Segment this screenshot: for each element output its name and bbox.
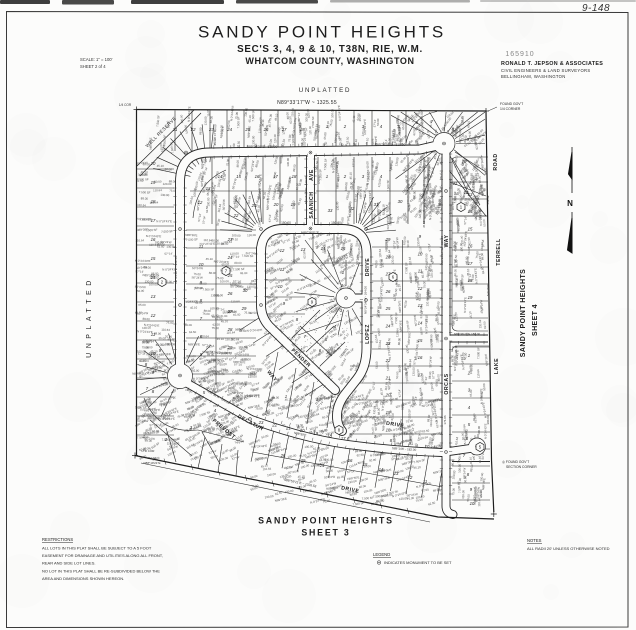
svg-text:14: 14 bbox=[321, 246, 326, 251]
svg-text:N0°24'43"E - 363.46: N0°24'43"E - 363.46 bbox=[174, 256, 178, 284]
svg-text:13: 13 bbox=[418, 303, 423, 308]
svg-text:130.00: 130.00 bbox=[300, 138, 304, 147]
svg-text:300.00: 300.00 bbox=[486, 415, 490, 425]
svg-text:SEC'S 3, 4, 9 & 10, T38N, RIE,: SEC'S 3, 4, 9 & 10, T38N, RIE, W.M. bbox=[237, 44, 423, 55]
svg-text:88.00: 88.00 bbox=[358, 213, 362, 221]
svg-text:100.00: 100.00 bbox=[424, 253, 428, 262]
svg-text:N89°36'E: N89°36'E bbox=[454, 275, 458, 287]
svg-text:50.00: 50.00 bbox=[137, 289, 145, 293]
svg-text:45.10: 45.10 bbox=[428, 264, 432, 272]
svg-text:130.00: 130.00 bbox=[247, 233, 256, 237]
svg-text:120.00: 120.00 bbox=[273, 134, 277, 143]
svg-text:57°14': 57°14' bbox=[164, 251, 173, 255]
svg-text:SECTION CORNER: SECTION CORNER bbox=[506, 465, 537, 469]
svg-text:7.500 SF: 7.500 SF bbox=[161, 229, 173, 234]
svg-text:45.10: 45.10 bbox=[261, 119, 265, 127]
svg-text:62.50: 62.50 bbox=[205, 205, 209, 213]
svg-text:62.50: 62.50 bbox=[314, 241, 319, 249]
svg-text:62.50: 62.50 bbox=[213, 322, 221, 326]
svg-text:12: 12 bbox=[280, 248, 285, 253]
svg-text:7.500 SF: 7.500 SF bbox=[251, 110, 255, 122]
svg-text:26: 26 bbox=[385, 289, 391, 294]
svg-text:7.500 SF: 7.500 SF bbox=[386, 179, 390, 191]
svg-text:N89°36'21"E: N89°36'21"E bbox=[301, 231, 319, 235]
svg-text:NOTES: NOTES bbox=[527, 538, 542, 543]
svg-text:N0°24'34"W - 130.00: N0°24'34"W - 130.00 bbox=[304, 176, 308, 204]
svg-text:88.00: 88.00 bbox=[397, 365, 402, 373]
svg-text:50.00: 50.00 bbox=[152, 429, 160, 433]
svg-text:75.00: 75.00 bbox=[349, 181, 354, 189]
svg-text:45.10: 45.10 bbox=[206, 257, 214, 261]
svg-text:N 0°24'43"E: N 0°24'43"E bbox=[135, 259, 151, 263]
svg-text:50.00: 50.00 bbox=[460, 115, 464, 123]
svg-text:7.500 SF: 7.500 SF bbox=[318, 169, 322, 181]
svg-text:88.00: 88.00 bbox=[141, 196, 149, 200]
svg-text:AREA AND DIMENSIONS SHOWN HERE: AREA AND DIMENSIONS SHOWN HEREON. bbox=[42, 576, 124, 581]
svg-text:14: 14 bbox=[218, 174, 223, 179]
svg-text:15: 15 bbox=[236, 174, 241, 179]
svg-text:50.00: 50.00 bbox=[279, 156, 283, 164]
svg-text:22: 22 bbox=[271, 423, 277, 428]
svg-text:100.00: 100.00 bbox=[366, 171, 371, 180]
svg-text:20: 20 bbox=[150, 161, 156, 166]
svg-text:REAR AND SIDE LOT LINES.: REAR AND SIDE LOT LINES. bbox=[42, 561, 96, 566]
svg-text:15: 15 bbox=[468, 226, 473, 231]
svg-text:13: 13 bbox=[301, 247, 306, 252]
svg-text:50.00: 50.00 bbox=[472, 413, 476, 421]
svg-text:SHEET 3: SHEET 3 bbox=[301, 528, 350, 538]
svg-text:130.00: 130.00 bbox=[286, 157, 290, 166]
svg-text:110.64: 110.64 bbox=[451, 201, 455, 210]
svg-text:88.00: 88.00 bbox=[204, 309, 212, 313]
svg-text:7.500 SF: 7.500 SF bbox=[429, 338, 434, 350]
svg-text:23: 23 bbox=[227, 237, 233, 242]
svg-text:110.64: 110.64 bbox=[257, 218, 262, 227]
svg-text:65.00: 65.00 bbox=[372, 416, 380, 420]
svg-text:N 0°24'43"E: N 0°24'43"E bbox=[368, 190, 373, 206]
svg-text:12: 12 bbox=[151, 313, 156, 318]
svg-text:S0°24'W: S0°24'W bbox=[335, 162, 339, 174]
svg-text:S0°24'W: S0°24'W bbox=[136, 161, 148, 166]
svg-text:7.500 SF: 7.500 SF bbox=[186, 237, 198, 242]
svg-text:17: 17 bbox=[341, 436, 346, 441]
svg-text:110.64: 110.64 bbox=[385, 362, 390, 371]
svg-text:11: 11 bbox=[453, 181, 458, 186]
svg-text:65.00: 65.00 bbox=[358, 114, 363, 122]
svg-text:50.00: 50.00 bbox=[219, 362, 227, 367]
svg-text:75.00: 75.00 bbox=[255, 406, 263, 411]
svg-text:110.64: 110.64 bbox=[425, 297, 429, 306]
svg-text:50.00: 50.00 bbox=[165, 167, 173, 171]
svg-text:19: 19 bbox=[151, 180, 156, 185]
svg-text:11: 11 bbox=[423, 479, 428, 484]
svg-text:50.00: 50.00 bbox=[365, 161, 370, 169]
svg-text:11: 11 bbox=[199, 244, 204, 249]
svg-text:62.50: 62.50 bbox=[232, 196, 236, 204]
svg-text:130.00: 130.00 bbox=[166, 245, 175, 249]
svg-text:18: 18 bbox=[327, 434, 332, 439]
svg-text:88.00: 88.00 bbox=[207, 352, 215, 356]
svg-text:120.00: 120.00 bbox=[242, 357, 251, 361]
svg-text:100.00: 100.00 bbox=[458, 464, 462, 473]
svg-text:29: 29 bbox=[241, 306, 247, 311]
svg-text:11: 11 bbox=[280, 267, 285, 272]
svg-text:11: 11 bbox=[151, 332, 156, 337]
svg-text:65.00: 65.00 bbox=[233, 313, 241, 317]
svg-text:AVE: AVE bbox=[309, 169, 315, 181]
svg-text:19: 19 bbox=[313, 431, 318, 436]
svg-text:110.64: 110.64 bbox=[231, 299, 240, 303]
svg-text:18: 18 bbox=[468, 278, 473, 283]
svg-text:26: 26 bbox=[280, 453, 286, 458]
svg-text:45.10: 45.10 bbox=[298, 474, 306, 478]
svg-text:57°14': 57°14' bbox=[347, 469, 356, 474]
svg-text:26: 26 bbox=[263, 127, 269, 132]
svg-text:45.10: 45.10 bbox=[249, 282, 257, 286]
svg-text:45.10: 45.10 bbox=[409, 275, 414, 283]
svg-text:100.00: 100.00 bbox=[477, 425, 481, 434]
svg-text:130.00: 130.00 bbox=[335, 201, 340, 210]
svg-text:100.00: 100.00 bbox=[206, 197, 210, 206]
svg-text:21: 21 bbox=[385, 375, 391, 380]
svg-text:12: 12 bbox=[198, 200, 203, 205]
svg-text:57°14': 57°14' bbox=[463, 216, 468, 225]
svg-text:15: 15 bbox=[151, 256, 156, 261]
svg-text:62.50: 62.50 bbox=[249, 311, 257, 315]
svg-text:45.10: 45.10 bbox=[466, 268, 470, 276]
svg-text:62.50: 62.50 bbox=[356, 453, 364, 458]
svg-text:75.00: 75.00 bbox=[225, 158, 230, 166]
svg-text:75.00: 75.00 bbox=[166, 321, 174, 325]
svg-text:17: 17 bbox=[418, 372, 423, 377]
svg-text:S0°24'W: S0°24'W bbox=[324, 475, 336, 480]
svg-text:21: 21 bbox=[172, 127, 178, 132]
svg-text:18: 18 bbox=[151, 199, 156, 204]
svg-text:RESTRICTIONS: RESTRICTIONS bbox=[42, 537, 73, 542]
svg-text:10: 10 bbox=[278, 284, 283, 289]
svg-text:45.10: 45.10 bbox=[157, 164, 165, 168]
svg-text:N 0°24'43"E: N 0°24'43"E bbox=[212, 130, 217, 146]
svg-text:N89°36'E: N89°36'E bbox=[188, 342, 200, 346]
svg-text:100.00: 100.00 bbox=[232, 233, 241, 238]
svg-text:SCALE: 1" = 100': SCALE: 1" = 100' bbox=[80, 57, 113, 62]
svg-text:16: 16 bbox=[468, 244, 473, 249]
svg-text:23: 23 bbox=[385, 341, 391, 346]
svg-text:65.00: 65.00 bbox=[437, 307, 441, 315]
svg-text:62.50: 62.50 bbox=[374, 260, 378, 268]
svg-text:88.00: 88.00 bbox=[234, 261, 242, 265]
svg-text:10: 10 bbox=[462, 159, 467, 164]
svg-text:20: 20 bbox=[385, 393, 391, 398]
svg-text:62.50: 62.50 bbox=[453, 160, 457, 168]
svg-text:150.00: 150.00 bbox=[331, 221, 341, 225]
svg-text:50.00: 50.00 bbox=[395, 371, 399, 379]
svg-text:25: 25 bbox=[244, 127, 250, 132]
svg-text:EASEMENT FOR DRAINAGE AND UTIL: EASEMENT FOR DRAINAGE AND UTILITIES ALON… bbox=[42, 553, 163, 558]
svg-text:22: 22 bbox=[190, 127, 196, 132]
svg-text:45.10: 45.10 bbox=[422, 220, 426, 228]
svg-text:65.00: 65.00 bbox=[430, 166, 434, 174]
svg-text:1/4 CORNER: 1/4 CORNER bbox=[500, 107, 521, 111]
svg-text:45.10: 45.10 bbox=[190, 305, 198, 309]
svg-text:100.00: 100.00 bbox=[414, 274, 419, 284]
svg-text:16: 16 bbox=[418, 355, 423, 360]
svg-text:29: 29 bbox=[385, 237, 391, 242]
svg-text:FOUND GOV'T: FOUND GOV'T bbox=[500, 102, 523, 106]
svg-text:110.64: 110.64 bbox=[148, 456, 157, 460]
svg-text:UNPLATTED: UNPLATTED bbox=[86, 276, 93, 358]
svg-text:75.00: 75.00 bbox=[426, 176, 430, 184]
svg-text:7.500 SF: 7.500 SF bbox=[202, 287, 214, 291]
svg-text:16: 16 bbox=[348, 458, 353, 463]
svg-text:12: 12 bbox=[408, 475, 413, 480]
svg-text:7.500 SF: 7.500 SF bbox=[311, 116, 315, 128]
svg-text:130.00: 130.00 bbox=[390, 255, 394, 264]
svg-text:19: 19 bbox=[291, 202, 296, 207]
svg-text:62.50: 62.50 bbox=[421, 488, 429, 493]
svg-text:7.500 SF: 7.500 SF bbox=[460, 274, 465, 286]
svg-text:UNPLATTED: UNPLATTED bbox=[299, 87, 352, 94]
svg-text:N 0°24'43"E: N 0°24'43"E bbox=[156, 219, 172, 223]
svg-text:130.00: 130.00 bbox=[204, 116, 208, 125]
svg-text:S0°24'W: S0°24'W bbox=[144, 436, 156, 441]
svg-text:24: 24 bbox=[227, 255, 233, 260]
svg-text:N89°36'21"E - 515.00: N89°36'21"E - 515.00 bbox=[247, 145, 278, 149]
svg-text:50.00: 50.00 bbox=[375, 361, 379, 369]
svg-text:65.00: 65.00 bbox=[295, 182, 299, 190]
svg-text:22: 22 bbox=[233, 213, 239, 218]
svg-text:20: 20 bbox=[273, 202, 279, 207]
svg-text:50.00: 50.00 bbox=[482, 383, 486, 391]
svg-text:75.00: 75.00 bbox=[422, 281, 426, 289]
svg-text:LEGEND: LEGEND bbox=[373, 552, 390, 557]
svg-text:88.00: 88.00 bbox=[198, 127, 203, 135]
svg-text:120.00: 120.00 bbox=[161, 343, 170, 347]
svg-text:100.00: 100.00 bbox=[194, 286, 203, 290]
svg-text:10: 10 bbox=[151, 351, 156, 356]
svg-text:110.64: 110.64 bbox=[149, 243, 158, 247]
svg-text:13: 13 bbox=[151, 294, 156, 299]
svg-text:N89°36'E: N89°36'E bbox=[200, 157, 204, 169]
svg-text:28: 28 bbox=[385, 254, 391, 259]
svg-text:13: 13 bbox=[206, 186, 211, 191]
svg-text:ALL RADII 20' UNLESS OTHERWISE: ALL RADII 20' UNLESS OTHERWISE NOTED bbox=[527, 546, 610, 551]
svg-text:110.64: 110.64 bbox=[378, 249, 382, 258]
svg-text:130.00: 130.00 bbox=[480, 242, 484, 251]
svg-text:15: 15 bbox=[363, 462, 368, 467]
svg-text:RONALD T. JEPSON & ASSOCIATES: RONALD T. JEPSON & ASSOCIATES bbox=[501, 61, 603, 67]
svg-text:CIVIL ENGINEERS & LAND SURVEYO: CIVIL ENGINEERS & LAND SURVEYORS bbox=[501, 68, 590, 73]
svg-text:N89°36'21"E 180.00: N89°36'21"E 180.00 bbox=[454, 332, 480, 336]
svg-text:45.10: 45.10 bbox=[468, 456, 473, 464]
svg-text:S0°24'W: S0°24'W bbox=[222, 199, 226, 211]
svg-text:57°14': 57°14' bbox=[397, 389, 402, 398]
svg-text:50.00: 50.00 bbox=[326, 468, 334, 473]
svg-text:7.500 SF: 7.500 SF bbox=[229, 281, 241, 285]
svg-text:65.00: 65.00 bbox=[222, 262, 230, 266]
svg-text:110.64: 110.64 bbox=[476, 369, 481, 378]
svg-text:SANDY POINT HEIGHTS: SANDY POINT HEIGHTS bbox=[198, 23, 446, 42]
svg-text:BELLINGHAM, WASHINGTON: BELLINGHAM, WASHINGTON bbox=[501, 74, 566, 79]
svg-text:75.00: 75.00 bbox=[475, 251, 480, 259]
svg-text:27: 27 bbox=[281, 127, 287, 132]
svg-text:21: 21 bbox=[285, 425, 291, 430]
svg-text:65.00: 65.00 bbox=[376, 328, 381, 336]
svg-text:24: 24 bbox=[319, 463, 325, 468]
svg-text:7.500 SF: 7.500 SF bbox=[476, 347, 480, 359]
svg-text:N: N bbox=[567, 199, 573, 208]
svg-text:26: 26 bbox=[227, 291, 233, 296]
svg-text:130.00: 130.00 bbox=[211, 293, 220, 297]
svg-text:88.00: 88.00 bbox=[144, 265, 152, 269]
svg-text:10: 10 bbox=[418, 251, 423, 256]
svg-text:N 0°24'43"E: N 0°24'43"E bbox=[424, 318, 428, 334]
svg-text:15: 15 bbox=[418, 338, 423, 343]
svg-text:130.00: 130.00 bbox=[251, 135, 255, 144]
svg-text:45.10: 45.10 bbox=[454, 345, 458, 353]
svg-text:57°14': 57°14' bbox=[231, 255, 240, 259]
svg-text:14: 14 bbox=[418, 321, 423, 326]
svg-text:N0°24'34"W - 330.00: N0°24'34"W - 330.00 bbox=[440, 236, 444, 264]
svg-text:12: 12 bbox=[418, 286, 423, 291]
svg-text:45.10: 45.10 bbox=[349, 172, 353, 180]
svg-text:57°14': 57°14' bbox=[373, 119, 377, 128]
svg-text:S0°24'W: S0°24'W bbox=[456, 220, 460, 232]
svg-text:57°14': 57°14' bbox=[268, 214, 272, 223]
svg-text:S0°24'W: S0°24'W bbox=[428, 356, 433, 368]
svg-text:150.00: 150.00 bbox=[281, 221, 291, 225]
svg-text:65.00: 65.00 bbox=[454, 259, 459, 267]
svg-text:LAKE: LAKE bbox=[494, 358, 500, 374]
svg-text:10: 10 bbox=[470, 501, 475, 506]
svg-text:23: 23 bbox=[208, 127, 214, 132]
svg-text:21: 21 bbox=[251, 203, 257, 208]
svg-text:65.00: 65.00 bbox=[159, 336, 167, 340]
svg-text:50.00: 50.00 bbox=[406, 240, 410, 248]
svg-text:45.10: 45.10 bbox=[217, 337, 225, 341]
svg-text:130.00: 130.00 bbox=[160, 193, 169, 197]
svg-text:100.00: 100.00 bbox=[344, 182, 349, 192]
svg-text:539.92: 539.92 bbox=[486, 195, 490, 205]
svg-text:14: 14 bbox=[379, 467, 384, 472]
svg-text:N89°36'21"E - 515.00: N89°36'21"E - 515.00 bbox=[375, 143, 406, 147]
svg-text:SANDY POINT HEIGHTS: SANDY POINT HEIGHTS bbox=[258, 516, 394, 526]
svg-text:25: 25 bbox=[385, 306, 391, 311]
svg-text:10: 10 bbox=[199, 262, 204, 267]
svg-text:50.00: 50.00 bbox=[185, 323, 193, 327]
svg-text:110.64: 110.64 bbox=[153, 188, 162, 192]
svg-text:28: 28 bbox=[299, 127, 305, 132]
svg-text:120.00: 120.00 bbox=[218, 314, 227, 318]
svg-text:88.00: 88.00 bbox=[450, 354, 454, 362]
svg-text:16: 16 bbox=[255, 174, 260, 179]
svg-text:65.00: 65.00 bbox=[323, 132, 328, 140]
svg-text:7.500 SF: 7.500 SF bbox=[404, 262, 408, 274]
svg-text:32: 32 bbox=[350, 206, 355, 211]
svg-text:33: 33 bbox=[328, 208, 333, 213]
svg-text:N89°36'E: N89°36'E bbox=[149, 137, 153, 149]
svg-text:NO LOT IN THIS PLAT SHALL BE R: NO LOT IN THIS PLAT SHALL BE RE-SUBDIVID… bbox=[42, 568, 160, 573]
svg-text:100.00: 100.00 bbox=[143, 339, 152, 343]
svg-text:11: 11 bbox=[418, 269, 423, 274]
svg-text:14: 14 bbox=[151, 275, 156, 280]
svg-text:120.00: 120.00 bbox=[379, 259, 383, 268]
svg-text:165910: 165910 bbox=[505, 51, 534, 58]
svg-text:65.00: 65.00 bbox=[240, 271, 248, 275]
svg-text:65.00: 65.00 bbox=[138, 303, 146, 307]
svg-text:16: 16 bbox=[151, 237, 156, 242]
svg-text:13: 13 bbox=[468, 192, 473, 197]
svg-text:TERRELL: TERRELL bbox=[496, 238, 502, 266]
svg-text:130.00: 130.00 bbox=[215, 241, 224, 245]
svg-text:88.00: 88.00 bbox=[209, 271, 217, 275]
svg-text:18: 18 bbox=[292, 174, 297, 179]
svg-text:ORCAS: ORCAS bbox=[444, 373, 450, 394]
svg-text:SANDY POINT HEIGHTS: SANDY POINT HEIGHTS bbox=[520, 269, 527, 357]
svg-text:88.00: 88.00 bbox=[239, 329, 247, 333]
svg-text:62.50: 62.50 bbox=[482, 321, 487, 329]
svg-text:17: 17 bbox=[273, 174, 278, 179]
svg-text:100.00: 100.00 bbox=[137, 349, 146, 353]
svg-text:120.00: 120.00 bbox=[461, 490, 465, 499]
svg-text:174.06: 174.06 bbox=[443, 415, 447, 425]
svg-text:LOPEZ: LOPEZ bbox=[365, 324, 371, 344]
svg-text:30: 30 bbox=[243, 288, 248, 293]
svg-text:N 0°24'43"E: N 0°24'43"E bbox=[379, 286, 383, 302]
svg-text:88.00: 88.00 bbox=[236, 160, 240, 168]
svg-text:N0°24'34"W - 264.00: N0°24'34"W - 264.00 bbox=[364, 286, 368, 314]
svg-text:57°14': 57°14' bbox=[414, 292, 419, 301]
svg-text:100.00: 100.00 bbox=[149, 282, 158, 286]
svg-text:65.00: 65.00 bbox=[232, 381, 240, 386]
svg-text:50.00: 50.00 bbox=[453, 269, 457, 277]
svg-text:◎ FOUND GOV'T: ◎ FOUND GOV'T bbox=[502, 460, 529, 464]
svg-text:1/4 COR: 1/4 COR bbox=[119, 103, 132, 107]
svg-text:27: 27 bbox=[227, 309, 233, 314]
svg-text:15: 15 bbox=[341, 246, 346, 251]
svg-text:120.00: 120.00 bbox=[310, 463, 319, 468]
svg-text:14: 14 bbox=[468, 209, 473, 214]
svg-text:25: 25 bbox=[300, 458, 306, 463]
svg-text:100.00: 100.00 bbox=[304, 444, 313, 449]
svg-text:N89°36'E: N89°36'E bbox=[185, 233, 197, 237]
svg-text:62.50: 62.50 bbox=[345, 136, 349, 144]
svg-text:110.64: 110.64 bbox=[478, 319, 482, 328]
svg-text:110.64: 110.64 bbox=[203, 238, 212, 242]
svg-text:WHATCOM COUNTY, WASHINGTON: WHATCOM COUNTY, WASHINGTON bbox=[245, 56, 414, 66]
svg-text:88.00: 88.00 bbox=[145, 345, 153, 349]
svg-text:120.00: 120.00 bbox=[179, 114, 184, 124]
svg-text:75.00: 75.00 bbox=[193, 272, 201, 276]
svg-text:110.64: 110.64 bbox=[161, 328, 170, 332]
svg-text:N89°36'E: N89°36'E bbox=[399, 320, 403, 332]
svg-text:N88°19'21"E: N88°19'21"E bbox=[143, 461, 160, 465]
svg-text:88.00: 88.00 bbox=[285, 112, 290, 120]
svg-text:62.50: 62.50 bbox=[423, 211, 427, 219]
svg-text:7.500 SF: 7.500 SF bbox=[236, 116, 240, 128]
svg-text:ALL LOTS IN THIS PLAT SHALL BE: ALL LOTS IN THIS PLAT SHALL BE SUBJECT T… bbox=[42, 546, 152, 551]
svg-text:110.64: 110.64 bbox=[137, 203, 146, 208]
svg-text:130.00: 130.00 bbox=[411, 367, 415, 376]
svg-text:7.500 SF: 7.500 SF bbox=[137, 177, 149, 181]
svg-text:DRIVE: DRIVE bbox=[365, 258, 371, 276]
svg-text:22: 22 bbox=[385, 358, 391, 363]
svg-text:WAY: WAY bbox=[444, 235, 450, 248]
svg-text:S 0°15'W: S 0°15'W bbox=[486, 284, 490, 297]
svg-text:24: 24 bbox=[385, 324, 391, 329]
svg-text:100.00: 100.00 bbox=[220, 279, 229, 283]
svg-text:7.500 SF: 7.500 SF bbox=[139, 190, 151, 195]
